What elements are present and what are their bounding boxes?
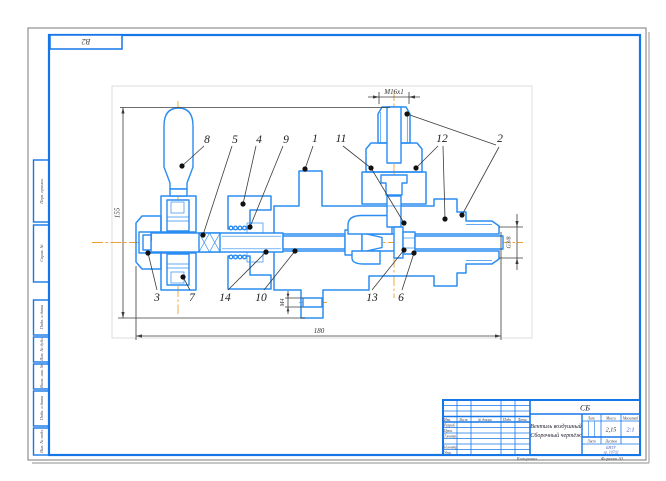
callout-number: 3 — [153, 292, 160, 304]
tb-col-podp: Подп. — [502, 418, 512, 422]
tb-name-line1: Вентиль воздушный — [530, 423, 581, 430]
pipe-bore — [387, 107, 401, 163]
flange-hole — [303, 298, 322, 307]
stamp-label: Инв. № дубл. — [39, 337, 44, 361]
callout-number: 1 — [312, 133, 318, 145]
callout-number: 9 — [283, 134, 289, 146]
cad-sheet-view: В2 Перв. примен. Справ. № Подп. и дата И… — [0, 0, 666, 481]
spindle-shaft — [283, 236, 345, 249]
tb-row-prov: Пров. — [443, 429, 453, 433]
tb-name-line2: Сборочный чертёж — [530, 432, 582, 439]
bonnet-slot-lower — [167, 254, 189, 285]
callout-number: 11 — [336, 133, 347, 145]
body-chamber-lower — [352, 251, 380, 264]
tb-mass-label: Масса — [605, 416, 616, 420]
callout-number: 12 — [436, 133, 448, 145]
stamp-label: Подп. и дата — [39, 305, 44, 331]
stamp-label: Инв. № подл. — [39, 429, 44, 454]
callout-number: 4 — [256, 134, 262, 146]
tb-row-tkontr: Т.контр. — [444, 434, 457, 438]
corner-designation-label: В2 — [82, 37, 91, 46]
dim-top-label: М16х1 — [383, 88, 403, 96]
tb-scale-value: 2:1 — [627, 428, 635, 434]
dim-flange-label: М4 — [279, 299, 286, 308]
tb-footer-copied: Копировал — [516, 456, 537, 461]
tb-col-doc: № докум. — [477, 418, 492, 422]
body-chamber-upper — [348, 216, 392, 235]
stamp-label: Справ. № — [39, 244, 44, 261]
outlet-bore — [415, 236, 503, 249]
tb-lit-label: Лит. — [587, 416, 596, 420]
tb-sheets-label: Листов — [604, 439, 617, 443]
tb-col-list: Лист — [458, 418, 468, 422]
tb-footer-format: Формат A3 — [601, 456, 624, 461]
handle-part8 — [164, 108, 193, 189]
tb-doc-code: СБ — [580, 404, 590, 413]
stem-channel — [387, 196, 401, 227]
tb-row-utv: Утв. — [444, 451, 452, 455]
title-block: Изм. Лист № докум. Подп. Дата Разраб. Пр… — [443, 400, 640, 461]
tb-row-nkontr: Н.контр. — [443, 445, 458, 449]
tb-col-izm: Изм. — [443, 418, 451, 422]
tb-col-data: Дата — [517, 418, 527, 422]
tb-scale-label: Масштаб — [622, 416, 638, 420]
corner-designation-box: В2 — [50, 35, 122, 49]
callout-number: 14 — [219, 292, 231, 304]
tb-sheet-label: Лист — [586, 439, 596, 443]
tb-mass-value: 2,15 — [606, 428, 617, 434]
handle-neck — [170, 189, 187, 196]
spindle-end-washer — [143, 235, 151, 250]
callout-number: 2 — [497, 133, 503, 145]
stamp-label: Подп. и дата — [39, 396, 44, 422]
stamp-label: Перв. примен. — [39, 178, 44, 204]
tb-org-line2: гр. 10702 — [604, 451, 619, 455]
drawing-sheet: В2 Перв. примен. Справ. № Подп. и дата И… — [0, 0, 666, 481]
callout-number: 13 — [366, 292, 378, 304]
callout-number: 5 — [232, 134, 238, 146]
stamp-label: Взам. инв. № — [39, 364, 44, 388]
callout-number: 10 — [255, 292, 267, 304]
tb-row-razrab: Разраб. — [443, 423, 456, 427]
tb-org-line1: БНТУ — [605, 446, 616, 450]
dim-right-label: G3/8 — [507, 237, 513, 249]
dim-left-label: 155 — [114, 207, 122, 218]
callout-number: 8 — [204, 134, 210, 146]
bonnet-slot-upper — [167, 200, 189, 231]
dim-bottom-label: 180 — [314, 327, 325, 335]
callout-number: 6 — [398, 292, 404, 304]
